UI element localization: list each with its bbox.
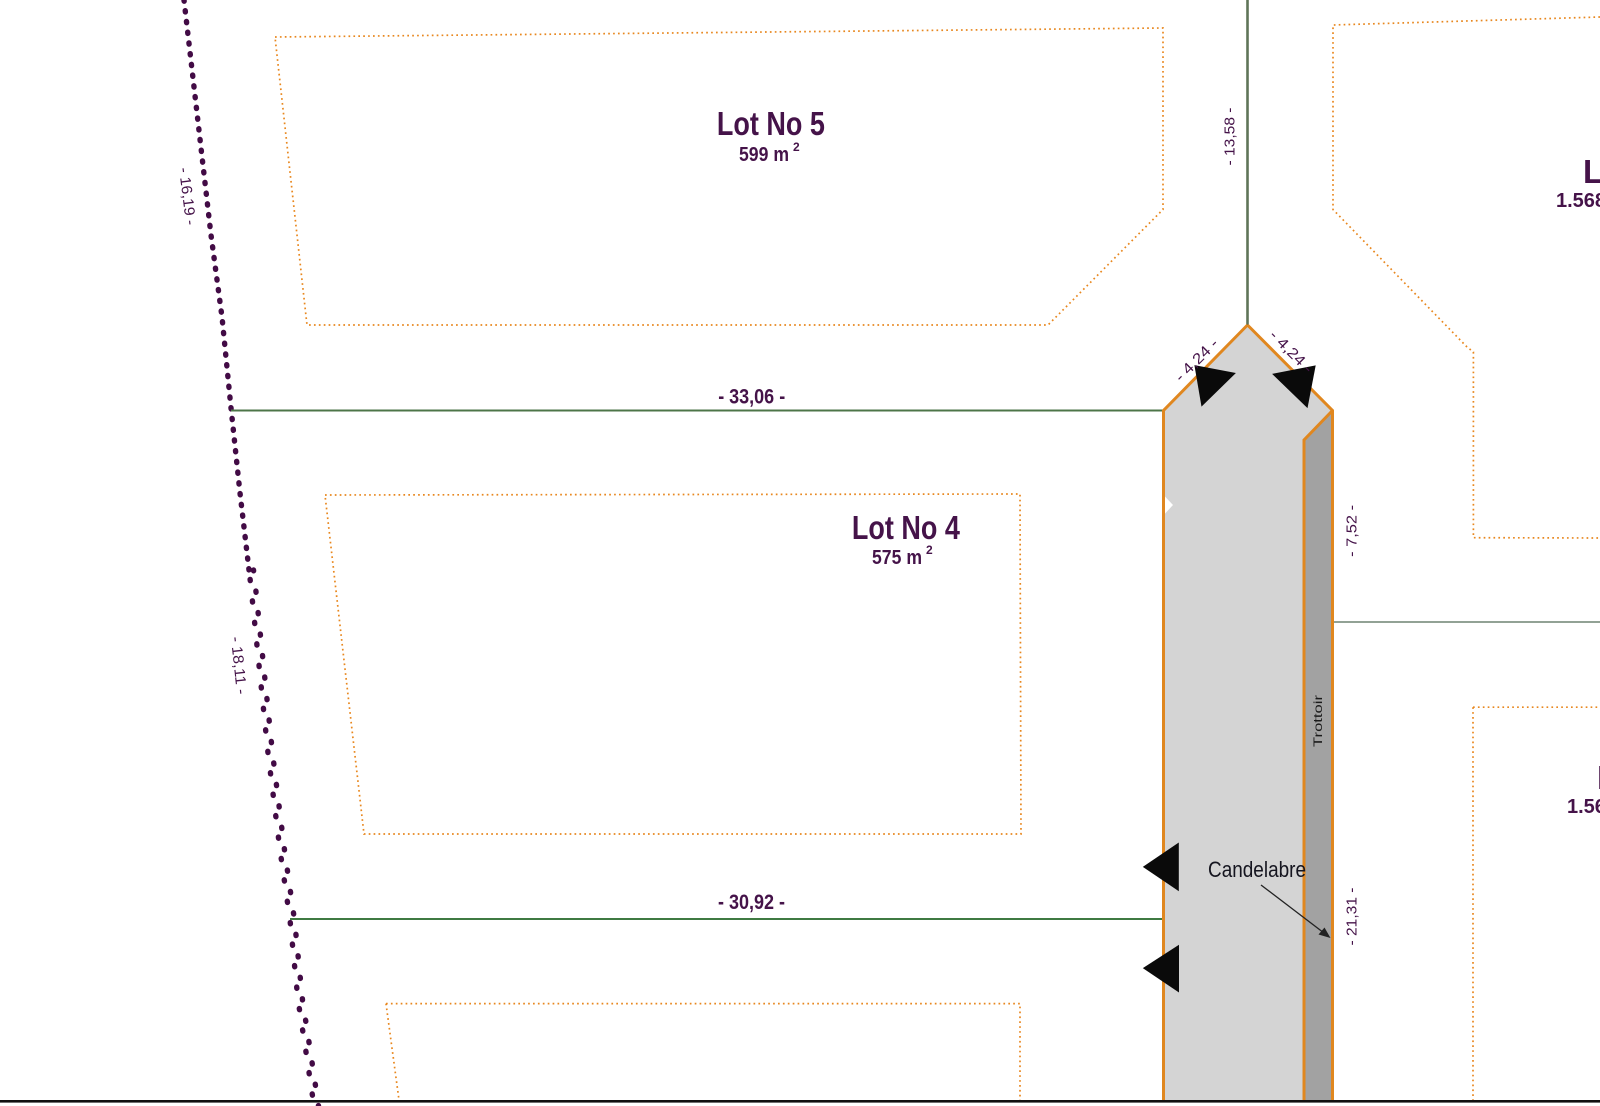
svg-text:599 m: 599 m [739, 144, 789, 166]
svg-text:- 33,06 -: - 33,06 - [718, 386, 785, 409]
svg-text:575 m: 575 m [872, 547, 922, 569]
svg-text:- 13,58 -: - 13,58 - [1222, 108, 1239, 166]
svg-text:Candelabre: Candelabre [1208, 857, 1306, 882]
svg-text:Lot No 6: Lot No 6 [1583, 153, 1600, 190]
svg-text:Trottoir: Trottoir [1311, 695, 1325, 747]
svg-text:2: 2 [926, 543, 933, 557]
svg-text:Lot No 5: Lot No 5 [717, 105, 825, 142]
svg-text:1.568 m: 1.568 m [1567, 796, 1600, 818]
svg-text:- 21,31 -: - 21,31 - [1343, 888, 1360, 946]
svg-text:- 30,92 -: - 30,92 - [718, 891, 785, 914]
svg-text:Lot No 4: Lot No 4 [852, 509, 961, 546]
svg-text:1.568 m: 1.568 m [1556, 190, 1600, 212]
svg-text:2: 2 [793, 140, 800, 154]
svg-text:- 7,52 -: - 7,52 - [1344, 505, 1361, 557]
